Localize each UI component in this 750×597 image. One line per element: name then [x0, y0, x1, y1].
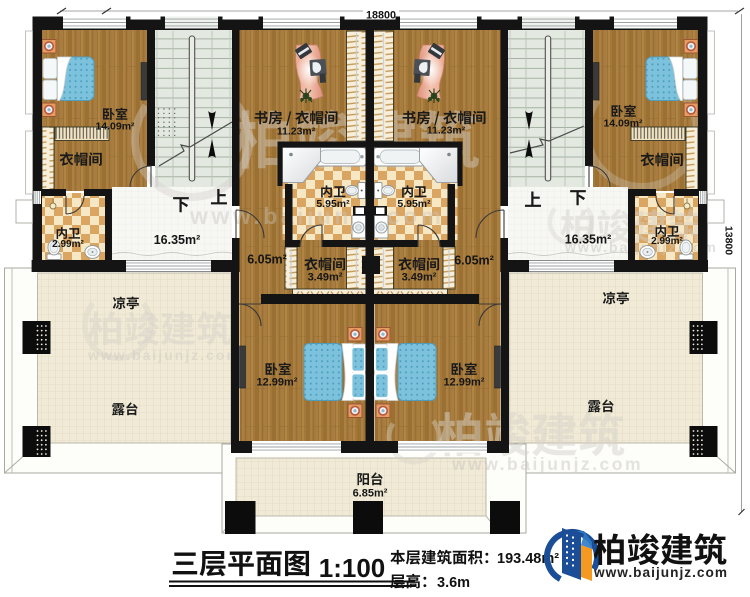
svg-text:11.23m²: 11.23m²: [427, 125, 466, 137]
svg-text:www.baijunjz.com: www.baijunjz.com: [87, 347, 241, 363]
svg-text:14.09m²: 14.09m²: [603, 118, 643, 130]
svg-text:5.95m²: 5.95m²: [316, 198, 350, 210]
svg-text:11.23m²: 11.23m²: [277, 126, 316, 138]
svg-text:2.99m²: 2.99m²: [52, 239, 84, 250]
svg-text:14.09m²: 14.09m²: [95, 121, 135, 133]
svg-text:www.baijunjz.com: www.baijunjz.com: [593, 565, 728, 580]
svg-text:3.6m: 3.6m: [437, 575, 470, 591]
svg-text:3.49m²: 3.49m²: [402, 272, 437, 284]
svg-text:16.35m²: 16.35m²: [154, 233, 201, 247]
svg-text:12.99m²: 12.99m²: [257, 377, 298, 389]
svg-text:13800: 13800: [723, 226, 735, 255]
svg-text:6.05m²: 6.05m²: [247, 253, 287, 267]
svg-text:www.baijunjz.com: www.baijunjz.com: [451, 454, 643, 474]
svg-text:16.35m²: 16.35m²: [565, 233, 612, 247]
svg-text:6.85m²: 6.85m²: [353, 488, 388, 500]
svg-text:12.99m²: 12.99m²: [444, 377, 485, 389]
svg-text:2.99m²: 2.99m²: [651, 236, 683, 247]
svg-text:5.95m²: 5.95m²: [397, 198, 431, 210]
svg-text:6.05m²: 6.05m²: [454, 254, 494, 268]
svg-text:1:100: 1:100: [319, 553, 386, 583]
svg-text:3.49m²: 3.49m²: [308, 272, 343, 284]
